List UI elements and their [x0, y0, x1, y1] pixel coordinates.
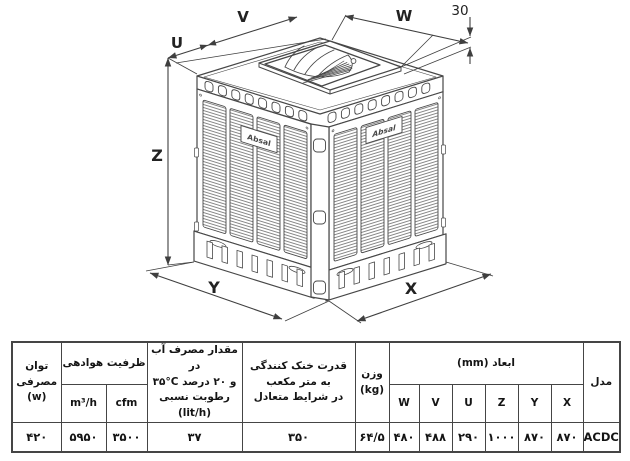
extension-line	[329, 301, 361, 323]
power-value: ۴۲۰	[12, 423, 61, 453]
dim-label-v: V	[237, 8, 249, 26]
cfm-value: ۳۵۰۰	[106, 423, 147, 453]
water-header-line2: ۳۵°C و ۲۰ درصد	[148, 375, 242, 391]
power-header: توان مصرفی (w)	[12, 342, 61, 423]
water-header: مقدار مصرف آب در ۳۵°C و ۲۰ درصد رطوبت نس…	[147, 342, 242, 423]
dim-col-v: V	[419, 385, 452, 423]
louver-panel	[415, 102, 438, 236]
dim-z-value: ۱۰۰۰	[485, 423, 518, 453]
cooler-body: Absal	[194, 38, 446, 301]
dim-col-x: X	[551, 385, 583, 423]
cooling-header: قدرت خنک کنندگی به متر مکعب در شرایط متع…	[242, 342, 355, 423]
dim-y-value: ۸۷۰	[518, 423, 551, 453]
dim-x-value: ۸۷۰	[551, 423, 583, 453]
dim-label-y: Y	[207, 278, 220, 297]
right-face: Absal	[326, 91, 446, 301]
water-value: ۳۷	[147, 423, 242, 453]
dim-label-x: X	[405, 279, 418, 298]
m3h-value: ۵۹۵۰	[61, 423, 106, 453]
dim-col-y: Y	[518, 385, 551, 423]
dim-col-u: U	[452, 385, 485, 423]
dim-u-value: ۲۹۰	[452, 423, 485, 453]
extension-line	[285, 301, 329, 321]
dim-col-w: W	[389, 385, 419, 423]
m3h-header: m³/h	[61, 385, 106, 423]
dimensions-header: ابعاد (mm)	[389, 342, 583, 385]
extension-line	[401, 35, 433, 67]
louver-panel	[284, 125, 307, 259]
dim-label-w: W	[396, 7, 413, 25]
dim-label-u: U	[171, 34, 183, 52]
cfm-header: cfm	[106, 385, 147, 423]
extension-line	[446, 262, 493, 276]
extension-line	[146, 262, 194, 271]
model-header: مدل	[583, 342, 620, 423]
cooling-value: ۳۵۰	[242, 423, 355, 453]
dim-label-z: Z	[151, 146, 163, 165]
left-face: Absal	[194, 88, 314, 298]
corner-clip	[314, 281, 326, 294]
weight-value: ۶۴/۵	[355, 423, 389, 453]
corner-clip	[314, 139, 326, 152]
model-value: ACDC68	[583, 423, 620, 453]
dim-label-30: 30	[451, 3, 468, 19]
dim-v-value: ۴۸۸	[419, 423, 452, 453]
weight-header: وزن (kg)	[355, 342, 389, 423]
airflow-header: ظرفیت هوادهی	[61, 342, 147, 385]
cooler-technical-drawing: Absal	[0, 0, 630, 340]
spec-sheet-page: Absal	[0, 0, 630, 461]
corner-clip	[314, 211, 326, 224]
louver-panel	[334, 127, 357, 261]
plane-line	[401, 37, 471, 67]
fan-pivot	[351, 59, 356, 64]
louver-panel	[203, 100, 226, 234]
spec-table: مدل ابعاد (mm) وزن (kg) قدرت خنک کنندگی …	[11, 341, 621, 453]
dim-w-value: ۴۸۰	[389, 423, 419, 453]
dim-col-z: Z	[485, 385, 518, 423]
extension-line	[332, 15, 346, 40]
